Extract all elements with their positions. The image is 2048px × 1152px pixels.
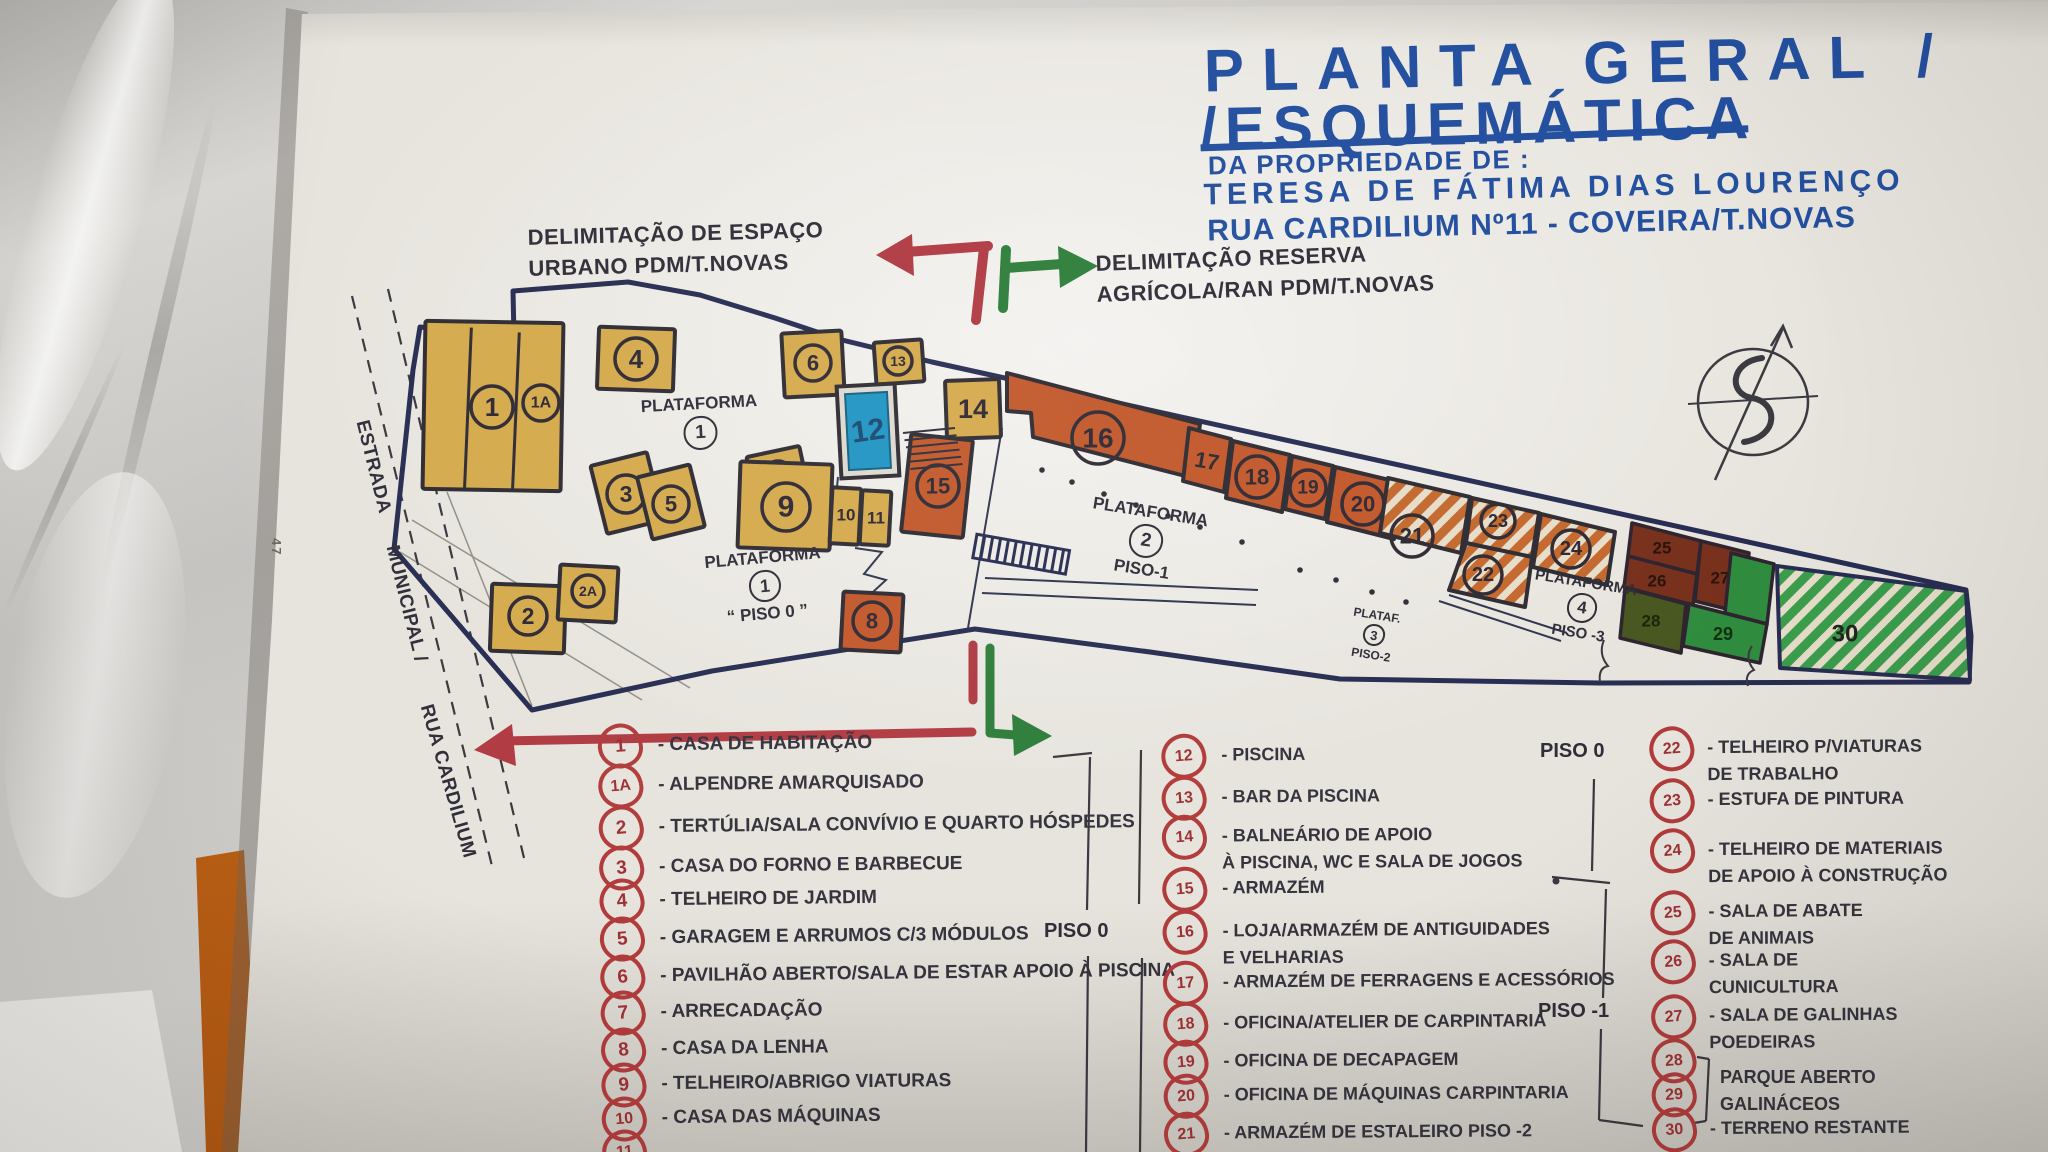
platform-number: 2 — [1127, 522, 1166, 561]
svg-text:3: 3 — [620, 481, 633, 507]
building-2: 2 — [490, 584, 566, 654]
green-arrow-top — [1003, 246, 1098, 308]
ground-dot — [1333, 577, 1339, 583]
ground-dot — [1369, 589, 1375, 595]
building-13: 13 — [874, 339, 925, 384]
legend-bracket-line — [1053, 753, 1092, 757]
ground-dot — [1239, 539, 1245, 545]
svg-text:29: 29 — [1713, 624, 1733, 644]
building-16: 16 — [1007, 373, 1200, 478]
legend-label-7: - ARRECADAÇÃO — [660, 996, 822, 1025]
legend-bracket-line — [1139, 750, 1141, 904]
legend-label-19: - OFICINA DE DECAPAGEM — [1223, 1046, 1458, 1075]
legend-label-1A: - ALPENDRE AMARQUISADO — [658, 768, 924, 798]
svg-text:18: 18 — [1245, 465, 1269, 490]
red-arrow-top — [876, 234, 988, 320]
svg-text:21: 21 — [1400, 524, 1424, 549]
svg-text:17: 17 — [1193, 447, 1221, 476]
platform-label-2: PLATAFORMA1“ PISO 0 ” — [677, 541, 853, 632]
building-2A: 2A — [558, 565, 619, 623]
svg-text:11: 11 — [867, 509, 885, 528]
legend-label-13: - BAR DA PISCINA — [1221, 782, 1380, 810]
svg-text:22: 22 — [1472, 564, 1494, 586]
platform-number: 1 — [748, 569, 783, 604]
platform-number: 4 — [1565, 591, 1599, 625]
legend-floor-label-0: PISO 0 — [1044, 920, 1108, 943]
svg-text:2A: 2A — [579, 583, 597, 599]
platform-number: 1 — [683, 415, 719, 451]
legend-label-14: - BALNEÁRIO DE APOIOÀ PISCINA, WC E SALA… — [1222, 820, 1523, 876]
svg-text:10: 10 — [837, 506, 856, 525]
building-9: 9 — [738, 461, 833, 550]
legend-label-4: - TELHEIRO DE JARDIM — [659, 884, 877, 913]
svg-text:15: 15 — [926, 474, 950, 499]
legend-bracket-line — [1694, 1121, 1706, 1123]
platform-label-1: PLATAFORMA1 — [614, 390, 787, 457]
legend-label-27: - SALA DE GALINHASPOEDEIRAS — [1709, 1001, 1898, 1056]
legend-floor-label-2: PISO -1 — [1538, 1000, 1609, 1023]
legend-floor-label-1: PISO 0 — [1540, 740, 1604, 763]
legend-bracket-line — [1599, 1120, 1643, 1126]
legend-label-5: - GARAGEM E ARRUMOS C/3 MÓDULOS — [660, 920, 1029, 951]
legend-label-15: - ARMAZÉM — [1222, 874, 1325, 902]
svg-text:25: 25 — [1653, 539, 1672, 558]
legend-label-21: - ARMAZÉM DE ESTALEIRO PISO -2 — [1224, 1117, 1532, 1146]
ground-dot — [1069, 479, 1075, 485]
building-4: 4 — [597, 327, 675, 392]
legend-label-3: - CASA DO FORNO E BARBECUE — [659, 850, 963, 880]
building-18: 18 — [1226, 441, 1290, 512]
svg-text:2: 2 — [522, 603, 535, 629]
legend-label-9: - TELHEIRO/ABRIGO VIATURAS — [661, 1067, 951, 1097]
building-17: 17 — [1183, 428, 1231, 492]
legend-label-1: - CASA DE HABITAÇÃO — [658, 729, 873, 758]
legend-label-17: - ARMAZÉM DE FERRAGENS E ACESSÓRIOS — [1223, 966, 1615, 996]
legend-group-label: PARQUE ABERTOGALINÁCEOS — [1720, 1064, 1876, 1118]
platform-number: 3 — [1361, 622, 1386, 647]
building-1: 11A — [423, 321, 564, 491]
svg-text:5: 5 — [665, 492, 677, 517]
legend-bracket-line — [1697, 1057, 1709, 1059]
building-15: 15 — [901, 434, 973, 538]
legend-label-26: - SALA DECUNICULTURA — [1709, 946, 1839, 1001]
legend-label-6: - PAVILHÃO ABERTO/SALA DE ESTAR APOIO À … — [660, 957, 1175, 989]
ground-dot — [1297, 567, 1303, 573]
svg-text:20: 20 — [1351, 492, 1375, 517]
legend-bracket-line — [1140, 958, 1142, 1152]
agricultural-limit-note: DELIMITAÇÃO RESERVA AGRÍCOLA/RAN PDM/T.N… — [1095, 236, 1435, 310]
building-10: 10 — [830, 487, 862, 544]
svg-text:8: 8 — [866, 609, 878, 634]
building-19: 19 — [1285, 456, 1333, 519]
legend-bracket-line — [1086, 956, 1088, 1152]
legend-label-22: - TELHEIRO P/VIATURASDE TRABALHO — [1707, 733, 1922, 788]
legend-label-8: - CASA DA LENHA — [661, 1033, 829, 1062]
legend-label-12: - PISCINA — [1221, 741, 1305, 769]
legend-label-18: - OFICINA/ATELIER DE CARPINTARIA — [1223, 1007, 1547, 1036]
svg-text:13: 13 — [890, 353, 906, 369]
ground-dot — [1039, 467, 1045, 473]
legend-label-2: - TERTÚLIA/SALA CONVÍVIO E QUARTO HÓSPED… — [659, 808, 1135, 840]
svg-text:9: 9 — [778, 491, 795, 524]
north-compass-icon — [1688, 326, 1818, 480]
svg-text:12: 12 — [849, 412, 887, 449]
margin-page-number: 47 — [269, 538, 284, 556]
photo-of-hand-drawn-site-plan: 11A43522A6137910111412815161718192021232… — [0, 0, 2048, 1152]
svg-text:6: 6 — [807, 351, 819, 376]
building-11: 11 — [860, 490, 892, 545]
svg-text:14: 14 — [958, 394, 988, 424]
ramp-line — [982, 593, 1256, 605]
legend-label-23: - ESTUFA DE PINTURA — [1708, 785, 1905, 813]
building-12: 12 — [837, 384, 900, 479]
legend-bracket-line — [1599, 1029, 1601, 1120]
building-21: 21 — [1380, 478, 1470, 557]
green-arrow-bottom — [990, 648, 1052, 756]
legend-label-10: - CASA DAS MÁQUINAS — [662, 1102, 881, 1131]
legend-label-25: - SALA DE ABATEDE ANIMAIS — [1708, 897, 1863, 952]
building-5: 5 — [637, 464, 705, 539]
svg-text:24: 24 — [1560, 538, 1583, 560]
legend-label-16: - LOJA/ARMAZÉM DE ANTIGUIDADESE VELHARIA… — [1222, 915, 1550, 971]
legend-label-24: - TELHEIRO DE MATERIAISDE APOIO À CONSTR… — [1708, 834, 1948, 890]
legend-label-20: - OFICINA DE MÁQUINAS CARPINTARIA — [1224, 1079, 1569, 1108]
urban-limit-note: DELIMITAÇÃO DE ESPAÇO URBANO PDM/T.NOVAS — [527, 214, 824, 284]
bracket-dot — [1553, 878, 1560, 885]
legend-bracket-line — [1706, 1059, 1709, 1121]
pergola — [973, 534, 1070, 574]
svg-text:4: 4 — [629, 344, 644, 374]
svg-text:16: 16 — [1082, 423, 1113, 454]
svg-text:30: 30 — [1832, 621, 1859, 648]
building-14: 14 — [945, 379, 1001, 439]
ground-dot — [1403, 599, 1409, 605]
legend-bracket-line — [1552, 877, 1610, 883]
svg-text:23: 23 — [1488, 511, 1508, 531]
legend-bracket-line — [1592, 779, 1594, 871]
svg-text:1: 1 — [485, 392, 499, 422]
svg-text:1A: 1A — [531, 395, 552, 412]
svg-text:19: 19 — [1297, 478, 1318, 499]
